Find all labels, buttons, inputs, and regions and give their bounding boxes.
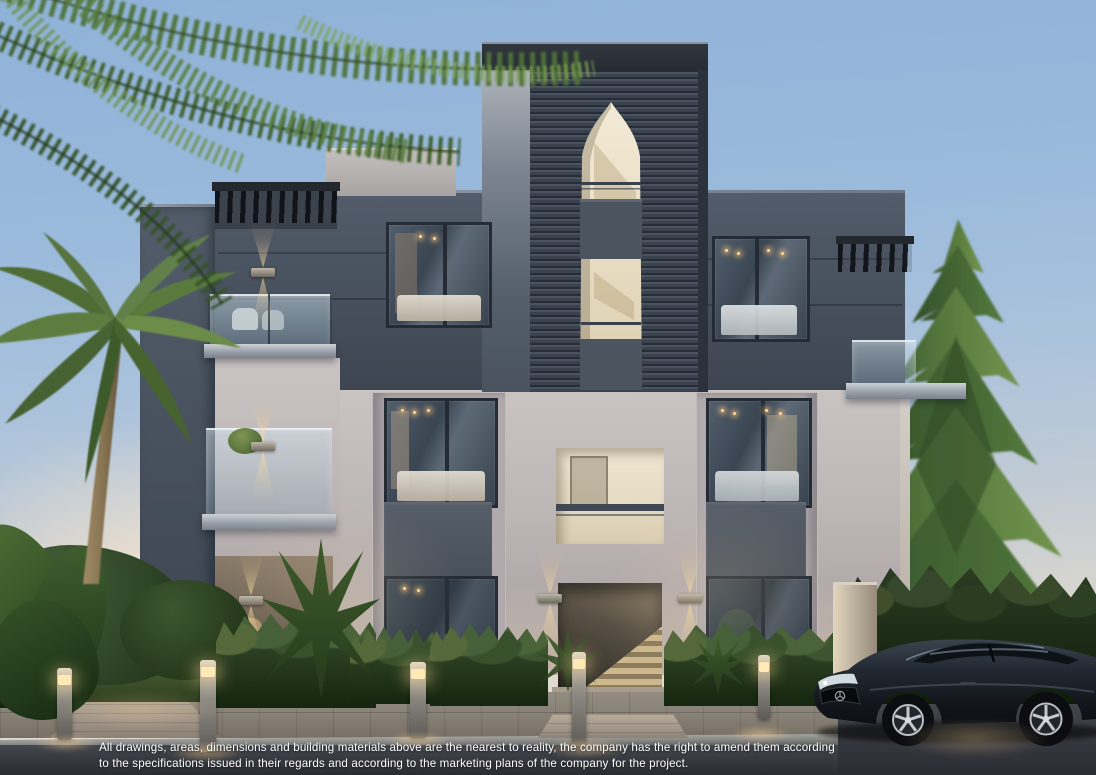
window-top-right xyxy=(712,236,810,342)
bollard-light xyxy=(410,662,426,738)
wall-sconce xyxy=(538,594,562,603)
bollard-light xyxy=(572,652,586,746)
light-pool xyxy=(34,734,98,752)
architectural-render: All drawings, areas, dimensions and buil… xyxy=(0,0,1096,775)
bollard-lamp xyxy=(411,669,425,679)
bollard-lamp xyxy=(759,662,769,672)
window-mid-right xyxy=(706,398,812,508)
disclaimer-caption: All drawings, areas, dimensions and buil… xyxy=(99,740,879,771)
walkway-center xyxy=(538,714,688,738)
disclaimer-line-2: to the specifications issued in their re… xyxy=(99,756,879,772)
balcony-slab-right xyxy=(846,383,966,399)
pergola-slats-right xyxy=(838,244,912,272)
balcony-glass-right xyxy=(852,340,916,387)
tower-right-edge xyxy=(698,70,708,392)
window-mid-left xyxy=(384,398,498,508)
palm-fronds-overhang xyxy=(0,0,640,362)
bollard-lamp xyxy=(201,667,215,677)
pergola-beam-right xyxy=(836,236,914,244)
light-pool xyxy=(60,690,220,730)
bollard-lamp xyxy=(573,659,585,669)
light-pool xyxy=(900,718,1050,758)
bollard-lamp xyxy=(58,675,71,685)
bollard-light xyxy=(758,655,770,719)
disclaimer-line-1: All drawings, areas, dimensions and buil… xyxy=(99,740,879,756)
